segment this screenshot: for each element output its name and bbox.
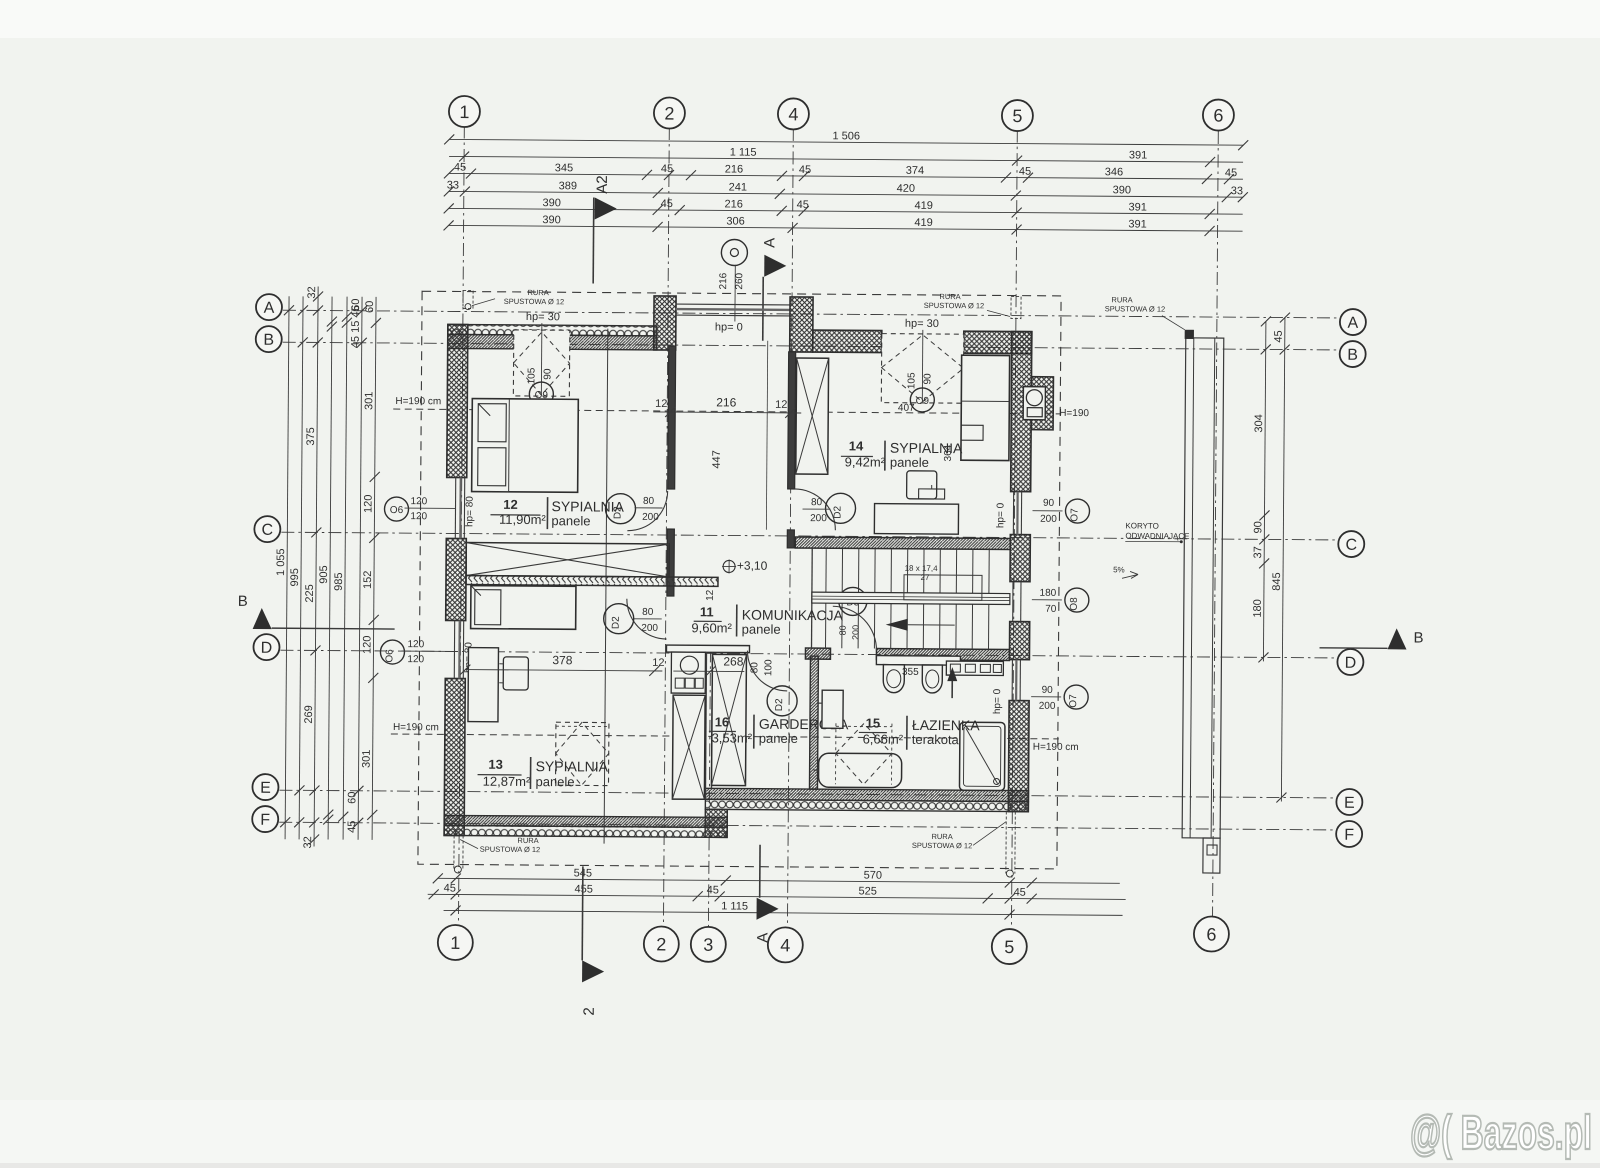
svg-text:O6: O6 [390,505,404,516]
svg-text:SYPIALNIA: SYPIALNIA [551,498,624,515]
svg-text:301: 301 [361,750,373,768]
svg-text:B: B [1414,629,1424,646]
svg-text:D2: D2 [774,698,785,711]
svg-text:RURA: RURA [939,292,960,301]
svg-text:H=190: H=190 [1059,408,1089,419]
svg-text:3: 3 [703,935,713,955]
svg-text:200: 200 [642,512,659,523]
svg-text:hp= 0: hp= 0 [992,688,1003,714]
svg-text:355: 355 [902,667,919,678]
svg-text:180: 180 [1252,599,1264,617]
svg-text:216: 216 [725,198,743,210]
svg-text:5%: 5% [1113,565,1125,574]
svg-text:12: 12 [775,399,787,411]
svg-text:F: F [1344,827,1354,844]
svg-text:985: 985 [333,572,345,590]
svg-text:391: 391 [1129,149,1147,161]
svg-text:419: 419 [915,200,933,212]
svg-text:O7: O7 [1068,694,1079,708]
svg-text:panele: panele [535,774,574,789]
svg-text:447: 447 [711,450,723,468]
svg-text:80: 80 [811,497,823,508]
svg-text:H=190 cm: H=190 cm [1033,742,1079,753]
svg-text:11: 11 [700,604,714,619]
svg-text:@( Bazos.pl: @( Bazos.pl [1410,1107,1592,1160]
svg-text:O8: O8 [1069,597,1080,611]
svg-text:1 115: 1 115 [721,900,748,912]
svg-text:SYPIALNIA: SYPIALNIA [536,758,609,775]
svg-text:1 506: 1 506 [832,130,860,142]
svg-text:RURA: RURA [1111,295,1132,304]
svg-text:SPUSTOWA Ø 12: SPUSTOWA Ø 12 [480,845,541,854]
svg-text:120: 120 [407,654,424,665]
svg-text:200: 200 [810,513,827,524]
svg-text:995: 995 [289,568,301,586]
svg-text:200: 200 [851,625,861,640]
svg-text:C: C [1345,537,1357,554]
svg-text:O9: O9 [916,396,930,407]
svg-text:panele: panele [759,731,798,746]
svg-text:45: 45 [1225,167,1237,179]
svg-text:14: 14 [849,438,864,453]
svg-text:1 055: 1 055 [275,548,287,576]
svg-text:845: 845 [1271,572,1283,590]
svg-text:45: 45 [444,882,456,894]
svg-text:90: 90 [1042,685,1054,696]
svg-text:hp= 80: hp= 80 [464,496,475,527]
svg-text:B: B [238,593,248,610]
svg-text:2: 2 [656,934,666,954]
svg-text:120: 120 [407,639,424,650]
svg-text:F: F [260,812,270,829]
svg-text:389: 389 [559,180,577,192]
svg-text:ŁAZIENKA: ŁAZIENKA [912,717,980,734]
svg-text:374: 374 [906,165,924,177]
svg-text:45: 45 [797,199,809,211]
svg-text:6: 6 [1206,924,1216,944]
svg-text:hp= 0: hp= 0 [715,321,743,333]
svg-text:A2: A2 [594,175,611,193]
svg-text:33: 33 [1231,185,1243,197]
svg-text:A: A [754,933,771,943]
svg-text:SPUSTOWA Ø 12: SPUSTOWA Ø 12 [924,301,985,310]
svg-text:420: 420 [897,183,915,195]
svg-text:11,90m²: 11,90m² [499,512,547,527]
svg-text:391: 391 [1129,201,1147,213]
svg-text:SPUSTOWA Ø 12: SPUSTOWA Ø 12 [1105,304,1166,313]
svg-text:2: 2 [581,1007,598,1015]
svg-text:120: 120 [411,496,428,507]
svg-text:306: 306 [726,215,744,227]
svg-text:13: 13 [488,757,503,772]
svg-text:268: 268 [723,654,743,668]
svg-text:391: 391 [1128,218,1146,230]
svg-text:B: B [1347,347,1358,364]
svg-text:407: 407 [898,403,915,414]
svg-text:120: 120 [362,495,374,513]
svg-text:216: 216 [718,272,729,289]
svg-text:12: 12 [652,657,664,669]
svg-text:6: 6 [1213,105,1223,125]
svg-text:5: 5 [1004,937,1014,957]
svg-text:D2: D2 [832,505,843,518]
svg-text:90: 90 [542,368,553,380]
svg-text:419: 419 [914,217,932,229]
svg-text:32: 32 [302,836,314,848]
svg-text:terakota: terakota [912,732,960,747]
svg-text:241: 241 [729,181,747,193]
svg-text:180: 180 [1040,588,1057,599]
svg-text:200: 200 [1040,514,1057,525]
svg-text:SPUSTOWA Ø 12: SPUSTOWA Ø 12 [912,841,973,850]
svg-text:H=190 cm: H=190 cm [395,396,441,407]
svg-text:390: 390 [1113,184,1131,196]
svg-text:390: 390 [543,197,561,209]
svg-text:90: 90 [922,373,933,385]
svg-text:269: 269 [303,705,315,723]
svg-text:45: 45 [707,884,719,896]
svg-text:12: 12 [503,497,518,512]
svg-text:hp= 0: hp= 0 [995,502,1006,528]
svg-text:32: 32 [306,286,318,298]
svg-text:45: 45 [1019,166,1031,178]
svg-text:70: 70 [1045,604,1057,615]
svg-text:C: C [262,522,274,539]
svg-text:12: 12 [655,398,667,410]
svg-text:45: 45 [454,161,466,173]
svg-text:6,66m²: 6,66m² [863,731,904,746]
svg-text:D: D [1345,655,1357,672]
svg-text:E: E [260,780,271,797]
svg-text:E: E [1344,795,1355,812]
svg-text:9,42m²: 9,42m² [845,454,886,469]
svg-text:60: 60 [364,301,376,313]
svg-text:152: 152 [362,571,374,589]
svg-text:45: 45 [346,821,358,833]
svg-text:panele: panele [890,455,929,470]
svg-text:45: 45 [799,164,811,176]
svg-text:216: 216 [716,395,736,409]
svg-text:525: 525 [858,885,876,897]
svg-text:105: 105 [526,367,537,384]
svg-text:60: 60 [346,792,358,804]
svg-text:D: D [261,640,273,657]
svg-text:346: 346 [1105,166,1123,178]
svg-text:O7: O7 [1069,508,1080,522]
svg-text:12: 12 [705,589,716,601]
svg-text:390: 390 [542,214,560,226]
svg-text:260: 260 [734,272,745,289]
svg-text:378: 378 [552,653,572,667]
svg-text:SPUSTOWA Ø 12: SPUSTOWA Ø 12 [504,297,565,306]
svg-text:4: 4 [780,935,790,955]
svg-text:905: 905 [318,565,330,583]
svg-text:D2: D2 [611,616,622,629]
svg-text:364: 364 [943,444,954,461]
svg-text:O6: O6 [384,649,395,663]
svg-text:120: 120 [361,636,373,654]
svg-text:455: 455 [575,883,593,895]
svg-text:hp= 30: hp= 30 [905,318,939,330]
svg-text:200: 200 [1039,701,1056,712]
svg-text:45: 45 [1273,330,1285,342]
svg-text:37: 37 [1252,546,1264,558]
svg-text:ODWADNIAJĄCE: ODWADNIAJĄCE [1125,531,1189,540]
svg-text:33: 33 [447,179,459,191]
svg-text:4: 4 [788,104,798,124]
svg-text:A: A [264,300,275,317]
svg-text:570: 570 [864,869,882,881]
svg-text:80: 80 [749,662,760,674]
svg-text:304: 304 [1253,414,1265,432]
svg-text:2: 2 [664,103,674,123]
svg-text:45: 45 [1014,887,1026,899]
svg-text:80: 80 [838,625,848,635]
svg-text:15: 15 [866,715,881,730]
svg-text:RURA: RURA [931,832,952,841]
svg-text:RURA: RURA [527,288,548,297]
svg-text:90: 90 [1043,498,1055,509]
svg-text:B: B [263,332,274,349]
svg-text:1: 1 [459,102,469,122]
svg-text:panele: panele [742,622,781,637]
svg-text:105: 105 [906,372,917,389]
svg-text:1: 1 [450,933,460,953]
svg-text:3,53m²: 3,53m² [712,730,753,745]
svg-text:45: 45 [661,163,673,175]
svg-text:A: A [1347,315,1358,332]
svg-text:80: 80 [643,496,655,507]
svg-text:hp= 30: hp= 30 [526,311,560,323]
svg-text:200: 200 [641,623,658,634]
svg-text:90: 90 [1252,521,1264,533]
svg-text:9,60m²: 9,60m² [691,620,732,635]
svg-text:panele: panele [551,513,590,528]
svg-text:345: 345 [555,162,573,174]
svg-text:216: 216 [725,163,743,175]
svg-text:120: 120 [410,511,427,522]
svg-text:A: A [761,238,778,248]
svg-text:12,87m²: 12,87m² [483,774,531,789]
svg-text:45: 45 [661,198,673,210]
svg-text:RURA: RURA [517,836,538,845]
svg-text:375: 375 [305,427,317,445]
svg-text:H=190 cm: H=190 cm [393,722,439,733]
svg-text:1 115: 1 115 [730,146,757,158]
svg-text:100: 100 [763,659,774,676]
svg-text:KORYTO: KORYTO [1125,521,1159,530]
svg-text:18 x 17,4: 18 x 17,4 [905,564,939,573]
svg-text:+3,10: +3,10 [737,559,768,573]
svg-text:301: 301 [363,392,375,410]
svg-text:45 15 45: 45 15 45 [350,305,362,348]
svg-text:5: 5 [1012,106,1022,126]
svg-text:27: 27 [921,573,931,582]
svg-text:80: 80 [642,607,654,618]
svg-text:16: 16 [715,714,730,729]
svg-text:225: 225 [304,584,316,602]
